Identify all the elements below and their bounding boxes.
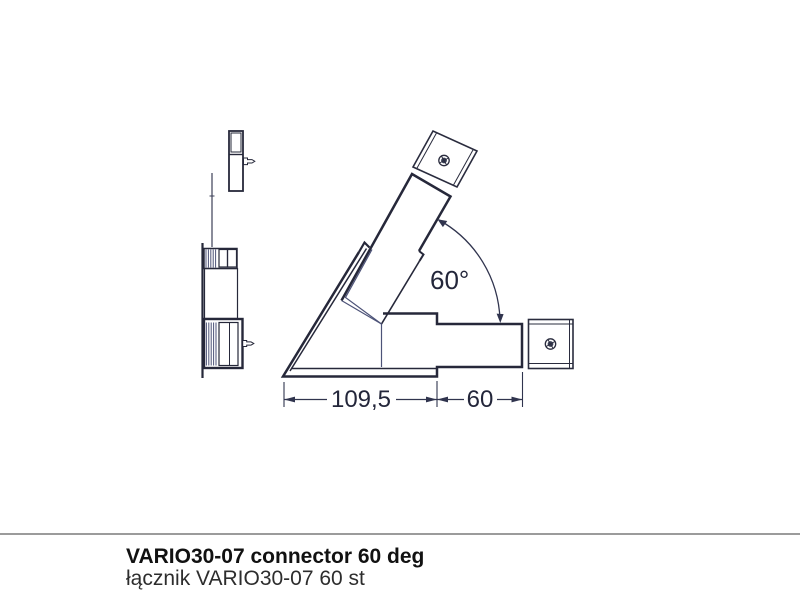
side-view-middle-section bbox=[205, 269, 238, 319]
connector-outline bbox=[283, 252, 522, 377]
side-view-lower-section bbox=[204, 319, 254, 368]
arc-arrowhead-lower bbox=[497, 314, 504, 323]
pin-icon bbox=[243, 341, 254, 347]
footer: VARIO30-07 connector 60 deg łącznik VARI… bbox=[0, 533, 800, 590]
end-cap-top bbox=[413, 131, 477, 187]
arm-notch bbox=[419, 251, 424, 261]
screw-icon bbox=[545, 339, 555, 349]
end-cap-right bbox=[529, 320, 574, 369]
side-view-reference-line bbox=[210, 173, 215, 247]
screw-icon bbox=[439, 155, 449, 165]
arc-arrowhead-upper bbox=[438, 219, 448, 227]
dimension-overall-label: 109,5 bbox=[331, 386, 391, 413]
product-title-pl: łącznik VARIO30-07 60 st bbox=[126, 568, 800, 590]
dimension-connector-label: 60 bbox=[467, 386, 494, 413]
main-view: 60° 109,5 60 bbox=[283, 131, 573, 413]
connector-body bbox=[283, 243, 522, 377]
side-view-profile-stack bbox=[203, 243, 254, 378]
dimension-overall: 109,5 bbox=[284, 381, 437, 413]
side-view-top-block bbox=[229, 131, 255, 191]
dimension-connector: 60 bbox=[437, 372, 523, 413]
footer-divider bbox=[0, 533, 800, 535]
technical-drawing: 60° 109,5 60 bbox=[0, 0, 800, 599]
pin-icon bbox=[244, 158, 255, 165]
angle-dimension-label: 60° bbox=[430, 265, 469, 295]
side-view bbox=[203, 131, 255, 378]
angle-arc: 60° bbox=[430, 219, 504, 323]
product-title-en: VARIO30-07 connector 60 deg bbox=[126, 546, 800, 568]
angled-profile-arm bbox=[342, 174, 451, 324]
page: 60° 109,5 60 bbox=[0, 0, 800, 599]
side-view-upper-section bbox=[204, 249, 237, 269]
